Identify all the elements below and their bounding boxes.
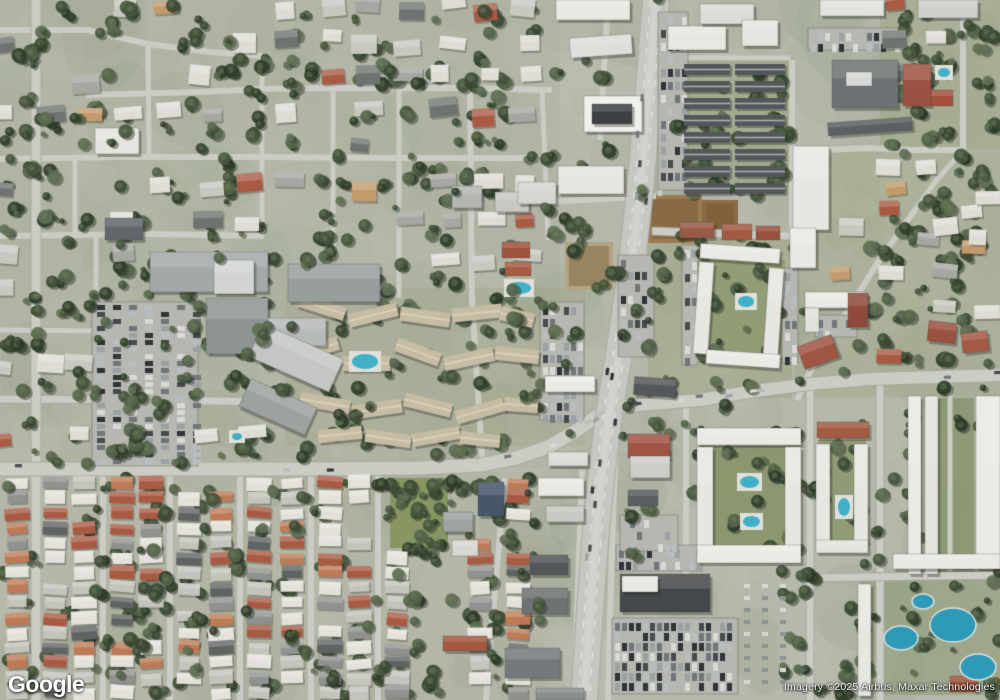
map-viewport: Google Imagery ©2025 Airbus, Maxar Techn…: [0, 0, 1000, 700]
imagery-attribution: Imagery ©2025 Airbus, Maxar Technologies: [784, 681, 995, 693]
google-logo[interactable]: Google: [8, 671, 84, 698]
satellite-imagery[interactable]: [0, 0, 1000, 700]
